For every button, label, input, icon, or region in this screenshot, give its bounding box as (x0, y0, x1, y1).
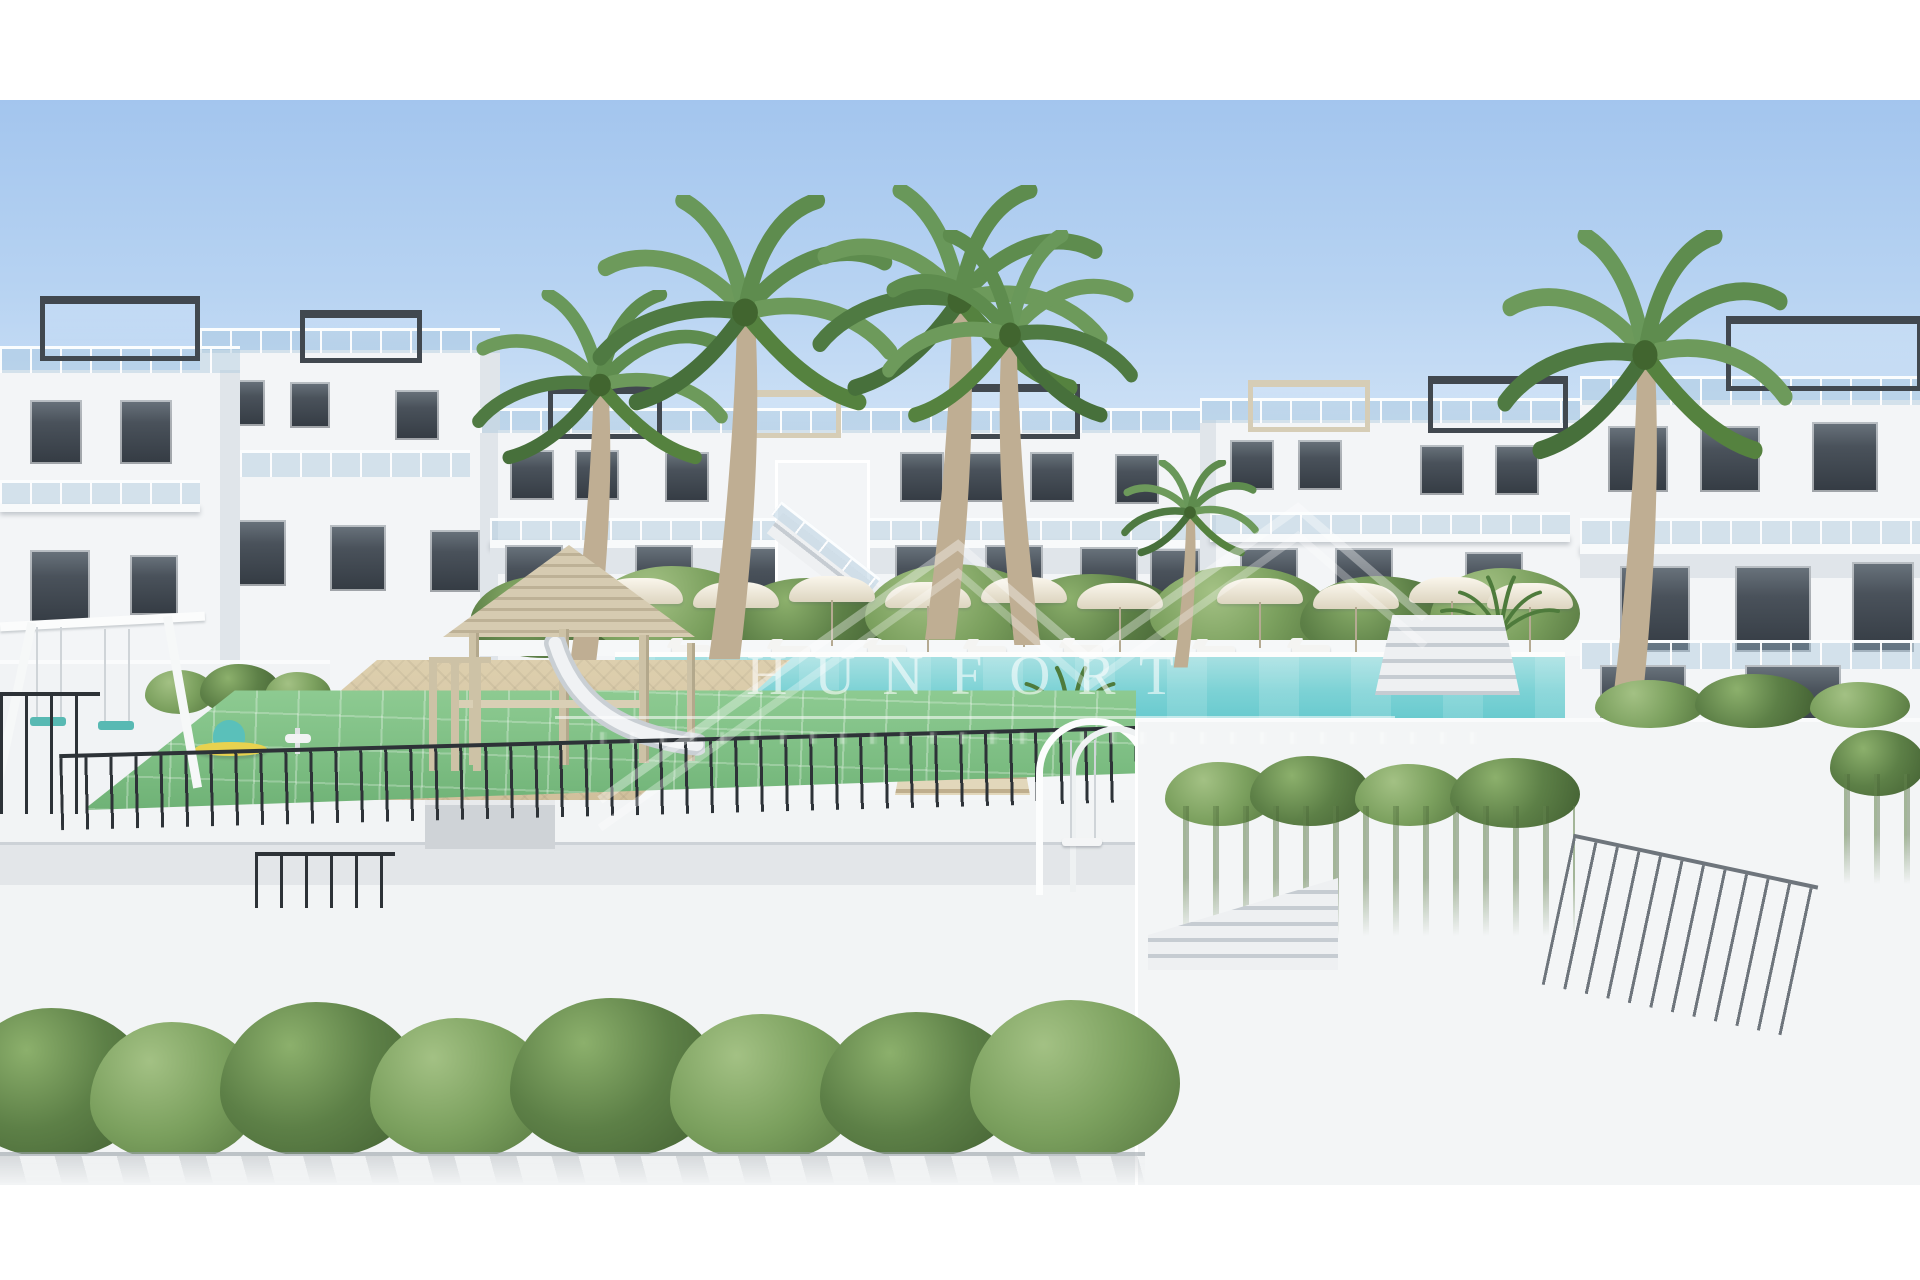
architectural-rendering-photo: HUNFORT (0, 100, 1920, 1185)
real-estate-render-page: HUNFORT (0, 0, 1920, 1280)
watermark-text: HUNFORT (719, 643, 1201, 708)
watermark-rule-line (555, 716, 1395, 719)
watermark-small-text-strip (600, 732, 1500, 744)
